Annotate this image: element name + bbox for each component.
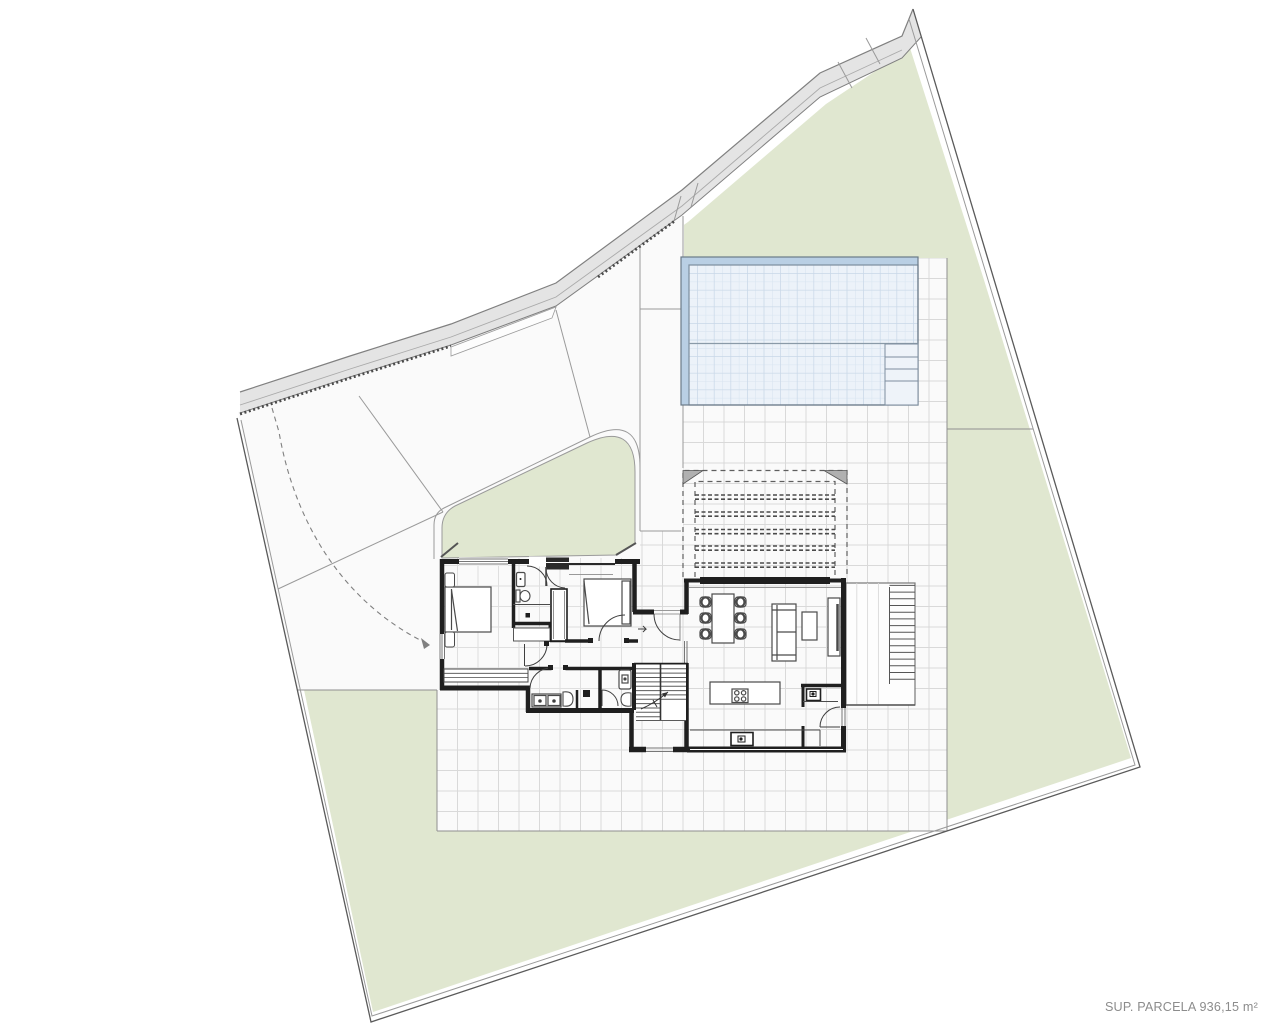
svg-text:SUP. PARCELA 936,15 m²: SUP. PARCELA 936,15 m²: [1105, 1000, 1258, 1014]
